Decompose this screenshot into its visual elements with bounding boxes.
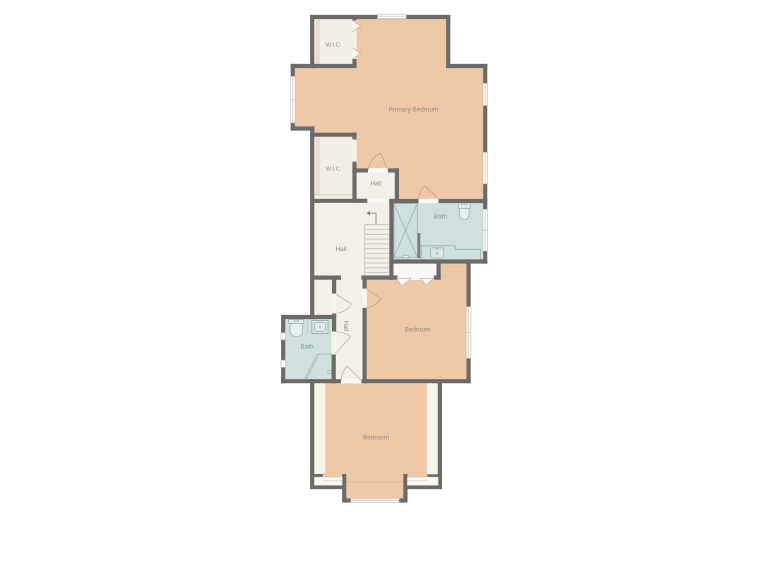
svg-text:Bath: Bath xyxy=(434,214,448,221)
svg-text:Bedroom: Bedroom xyxy=(405,326,431,333)
svg-text:Bedroom: Bedroom xyxy=(363,434,389,441)
svg-text:Bath: Bath xyxy=(300,343,314,350)
svg-text:Primary Bedroom: Primary Bedroom xyxy=(389,106,439,113)
svg-text:Hall: Hall xyxy=(335,246,346,253)
svg-text:W.I.C.: W.I.C. xyxy=(325,42,341,48)
svg-text:W.I.C.: W.I.C. xyxy=(325,166,341,172)
svg-text:Hall: Hall xyxy=(370,181,381,188)
svg-text:Hall: Hall xyxy=(342,320,349,331)
